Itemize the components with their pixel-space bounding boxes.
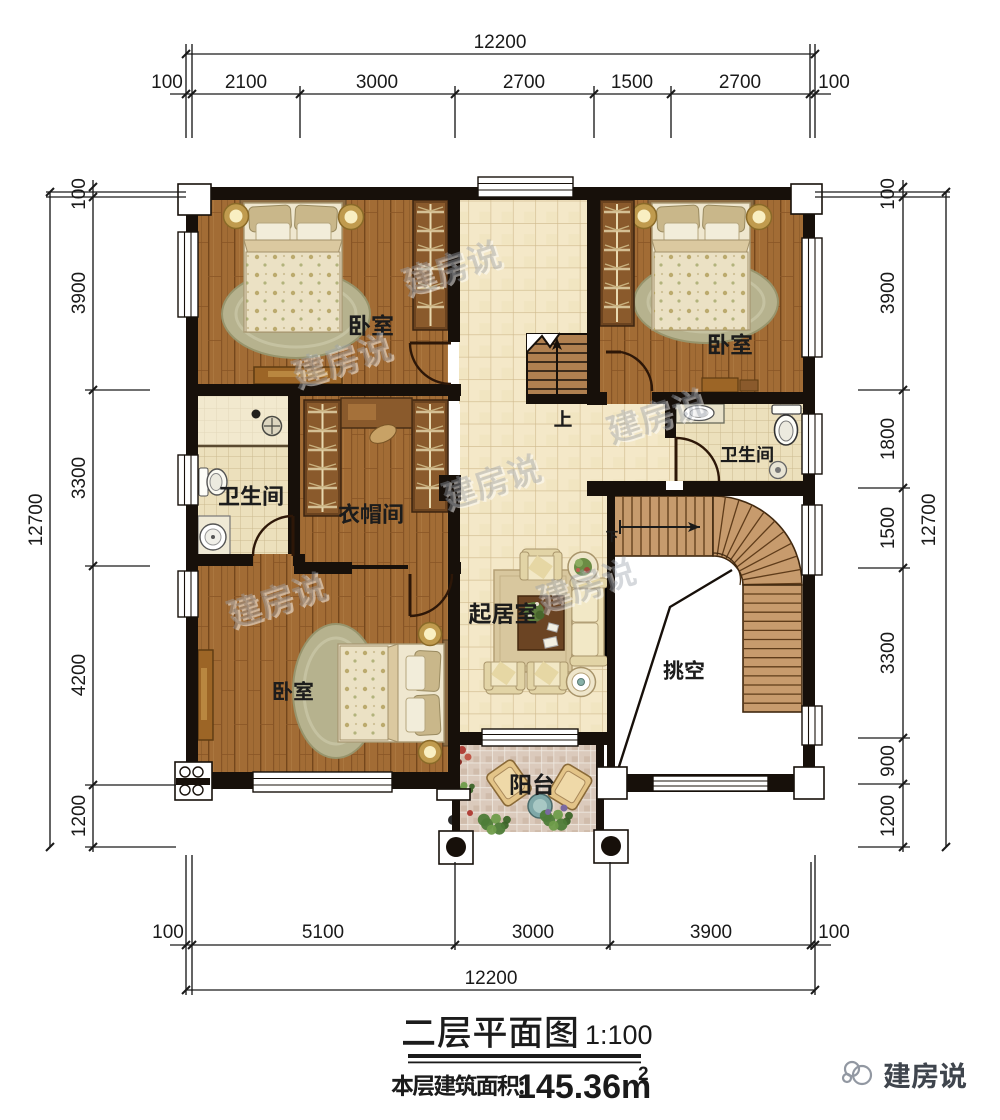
svg-text:3000: 3000 <box>356 72 398 93</box>
svg-text:3900: 3900 <box>690 922 732 943</box>
svg-text:2700: 2700 <box>503 72 545 93</box>
svg-text:12200: 12200 <box>465 968 518 989</box>
svg-text:100: 100 <box>152 922 184 943</box>
svg-text:3000: 3000 <box>512 922 554 943</box>
svg-text:12700: 12700 <box>26 494 47 547</box>
svg-text:1:100: 1:100 <box>585 1020 653 1050</box>
svg-text:145.36m: 145.36m <box>517 1068 651 1106</box>
svg-text:3300: 3300 <box>878 632 899 674</box>
svg-text:900: 900 <box>878 745 899 777</box>
svg-text:1500: 1500 <box>878 507 899 549</box>
svg-text:2700: 2700 <box>719 72 761 93</box>
svg-text:2: 2 <box>638 1064 649 1085</box>
svg-text:1500: 1500 <box>611 72 653 93</box>
svg-text:1800: 1800 <box>878 418 899 460</box>
svg-text:2100: 2100 <box>225 72 267 93</box>
svg-text:100: 100 <box>151 72 183 93</box>
svg-text:12200: 12200 <box>474 32 527 53</box>
svg-text:3300: 3300 <box>69 457 90 499</box>
svg-text:12700: 12700 <box>919 494 940 547</box>
svg-text:5100: 5100 <box>302 922 344 943</box>
svg-text:100: 100 <box>818 922 850 943</box>
svg-text:3900: 3900 <box>878 272 899 314</box>
svg-text:100: 100 <box>818 72 850 93</box>
svg-text:1200: 1200 <box>69 795 90 837</box>
svg-text:3900: 3900 <box>69 272 90 314</box>
svg-text:4200: 4200 <box>69 654 90 696</box>
svg-text:100: 100 <box>878 178 899 210</box>
svg-text:100: 100 <box>69 178 90 210</box>
svg-text:1200: 1200 <box>878 795 899 837</box>
